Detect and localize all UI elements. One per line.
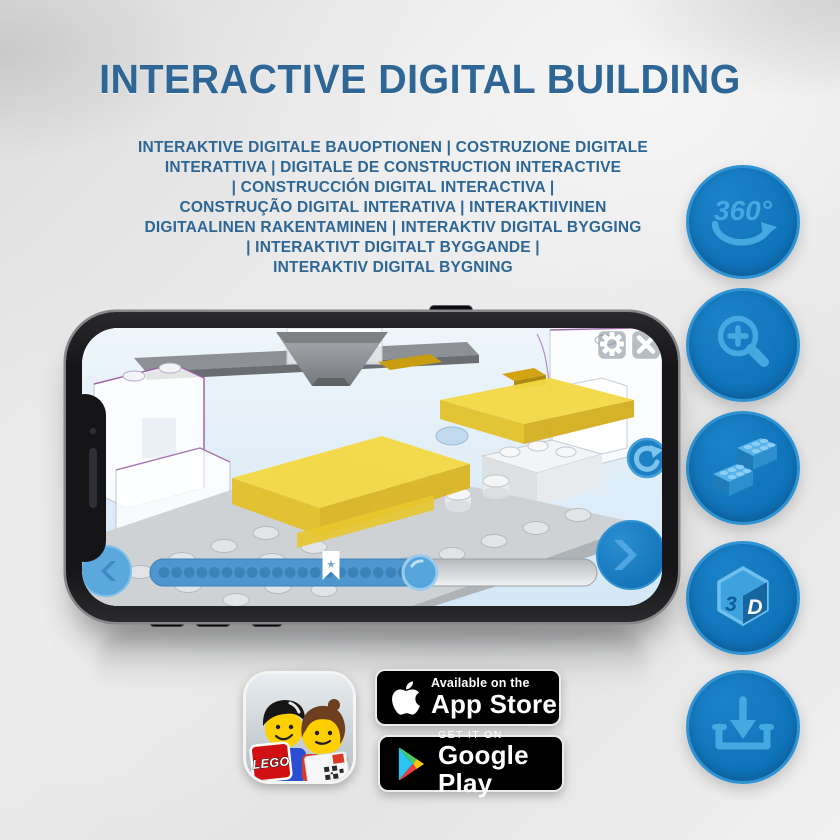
- lego-brick-icon: [703, 428, 783, 508]
- page-title: INTERACTIVE DIGITAL BUILDING: [17, 56, 823, 103]
- 360-label: 360°: [714, 195, 773, 226]
- notch: [82, 394, 106, 562]
- app-store-badge[interactable]: Available on the App Store: [375, 669, 561, 726]
- marketing-image: INTERACTIVE DIGITAL BUILDING INTERAKTIVE…: [0, 0, 840, 840]
- subtitle-line: INTERATTIVA | DIGITALE DE CONSTRUCTION I…: [103, 158, 683, 178]
- camera-icon: [90, 428, 96, 434]
- speaker-icon: [89, 448, 97, 508]
- 3d-cube-icon: 3 D: [703, 558, 783, 638]
- apple-logo-icon: [391, 679, 421, 717]
- google-play-badge[interactable]: GET IT ON Google Play: [378, 735, 564, 792]
- next-button[interactable]: [597, 521, 662, 589]
- app-store-label: App Store: [431, 691, 557, 718]
- close-button[interactable]: [632, 331, 660, 359]
- multilingual-subtitle: INTERAKTIVE DIGITALE BAUOPTIONEN | COSTR…: [103, 138, 683, 278]
- 360-rotation-icon: 360°: [701, 180, 785, 264]
- google-play-label: Google Play: [438, 742, 562, 797]
- feature-3d-badge: 3 D: [686, 541, 800, 655]
- lego-app-icon[interactable]: LEGO: [243, 671, 356, 784]
- star-marker-icon: ★: [326, 559, 336, 571]
- feature-360-badge: 360°: [686, 165, 800, 279]
- subtitle-line: CONSTRUÇÃO DIGITAL INTERATIVA | INTERAKT…: [103, 198, 683, 218]
- phone-mockup: ★: [66, 312, 678, 622]
- lego-logo: LEGO: [250, 742, 292, 781]
- rotate-button[interactable]: [628, 439, 662, 477]
- app-store-tagline: Available on the: [431, 677, 557, 690]
- phone-screen: ★: [82, 328, 662, 606]
- feature-bricks-badge: [686, 411, 800, 525]
- subtitle-line: INTERAKTIVE DIGITALE BAUOPTIONEN | COSTR…: [103, 138, 683, 158]
- 3d-char-3: 3: [725, 593, 737, 616]
- download-icon: [703, 687, 783, 767]
- feature-zoom-badge: [686, 288, 800, 402]
- 3d-char-d: D: [747, 596, 762, 619]
- settings-button[interactable]: [598, 331, 626, 359]
- subtitle-line: | INTERAKTIVT DIGITALT BYGGANDE |: [103, 238, 683, 258]
- subtitle-line: INTERAKTIV DIGITAL BYGNING: [103, 258, 683, 278]
- zoom-in-icon: [703, 305, 783, 385]
- subtitle-line: DIGITAALINEN RAKENTAMINEN | INTERAKTIV D…: [103, 218, 683, 238]
- google-play-logo-icon: [394, 745, 428, 783]
- subtitle-line: | CONSTRUCCIÓN DIGITAL INTERACTIVA |: [103, 178, 683, 198]
- phone-reflection: [96, 626, 648, 706]
- feature-download-badge: [686, 670, 800, 784]
